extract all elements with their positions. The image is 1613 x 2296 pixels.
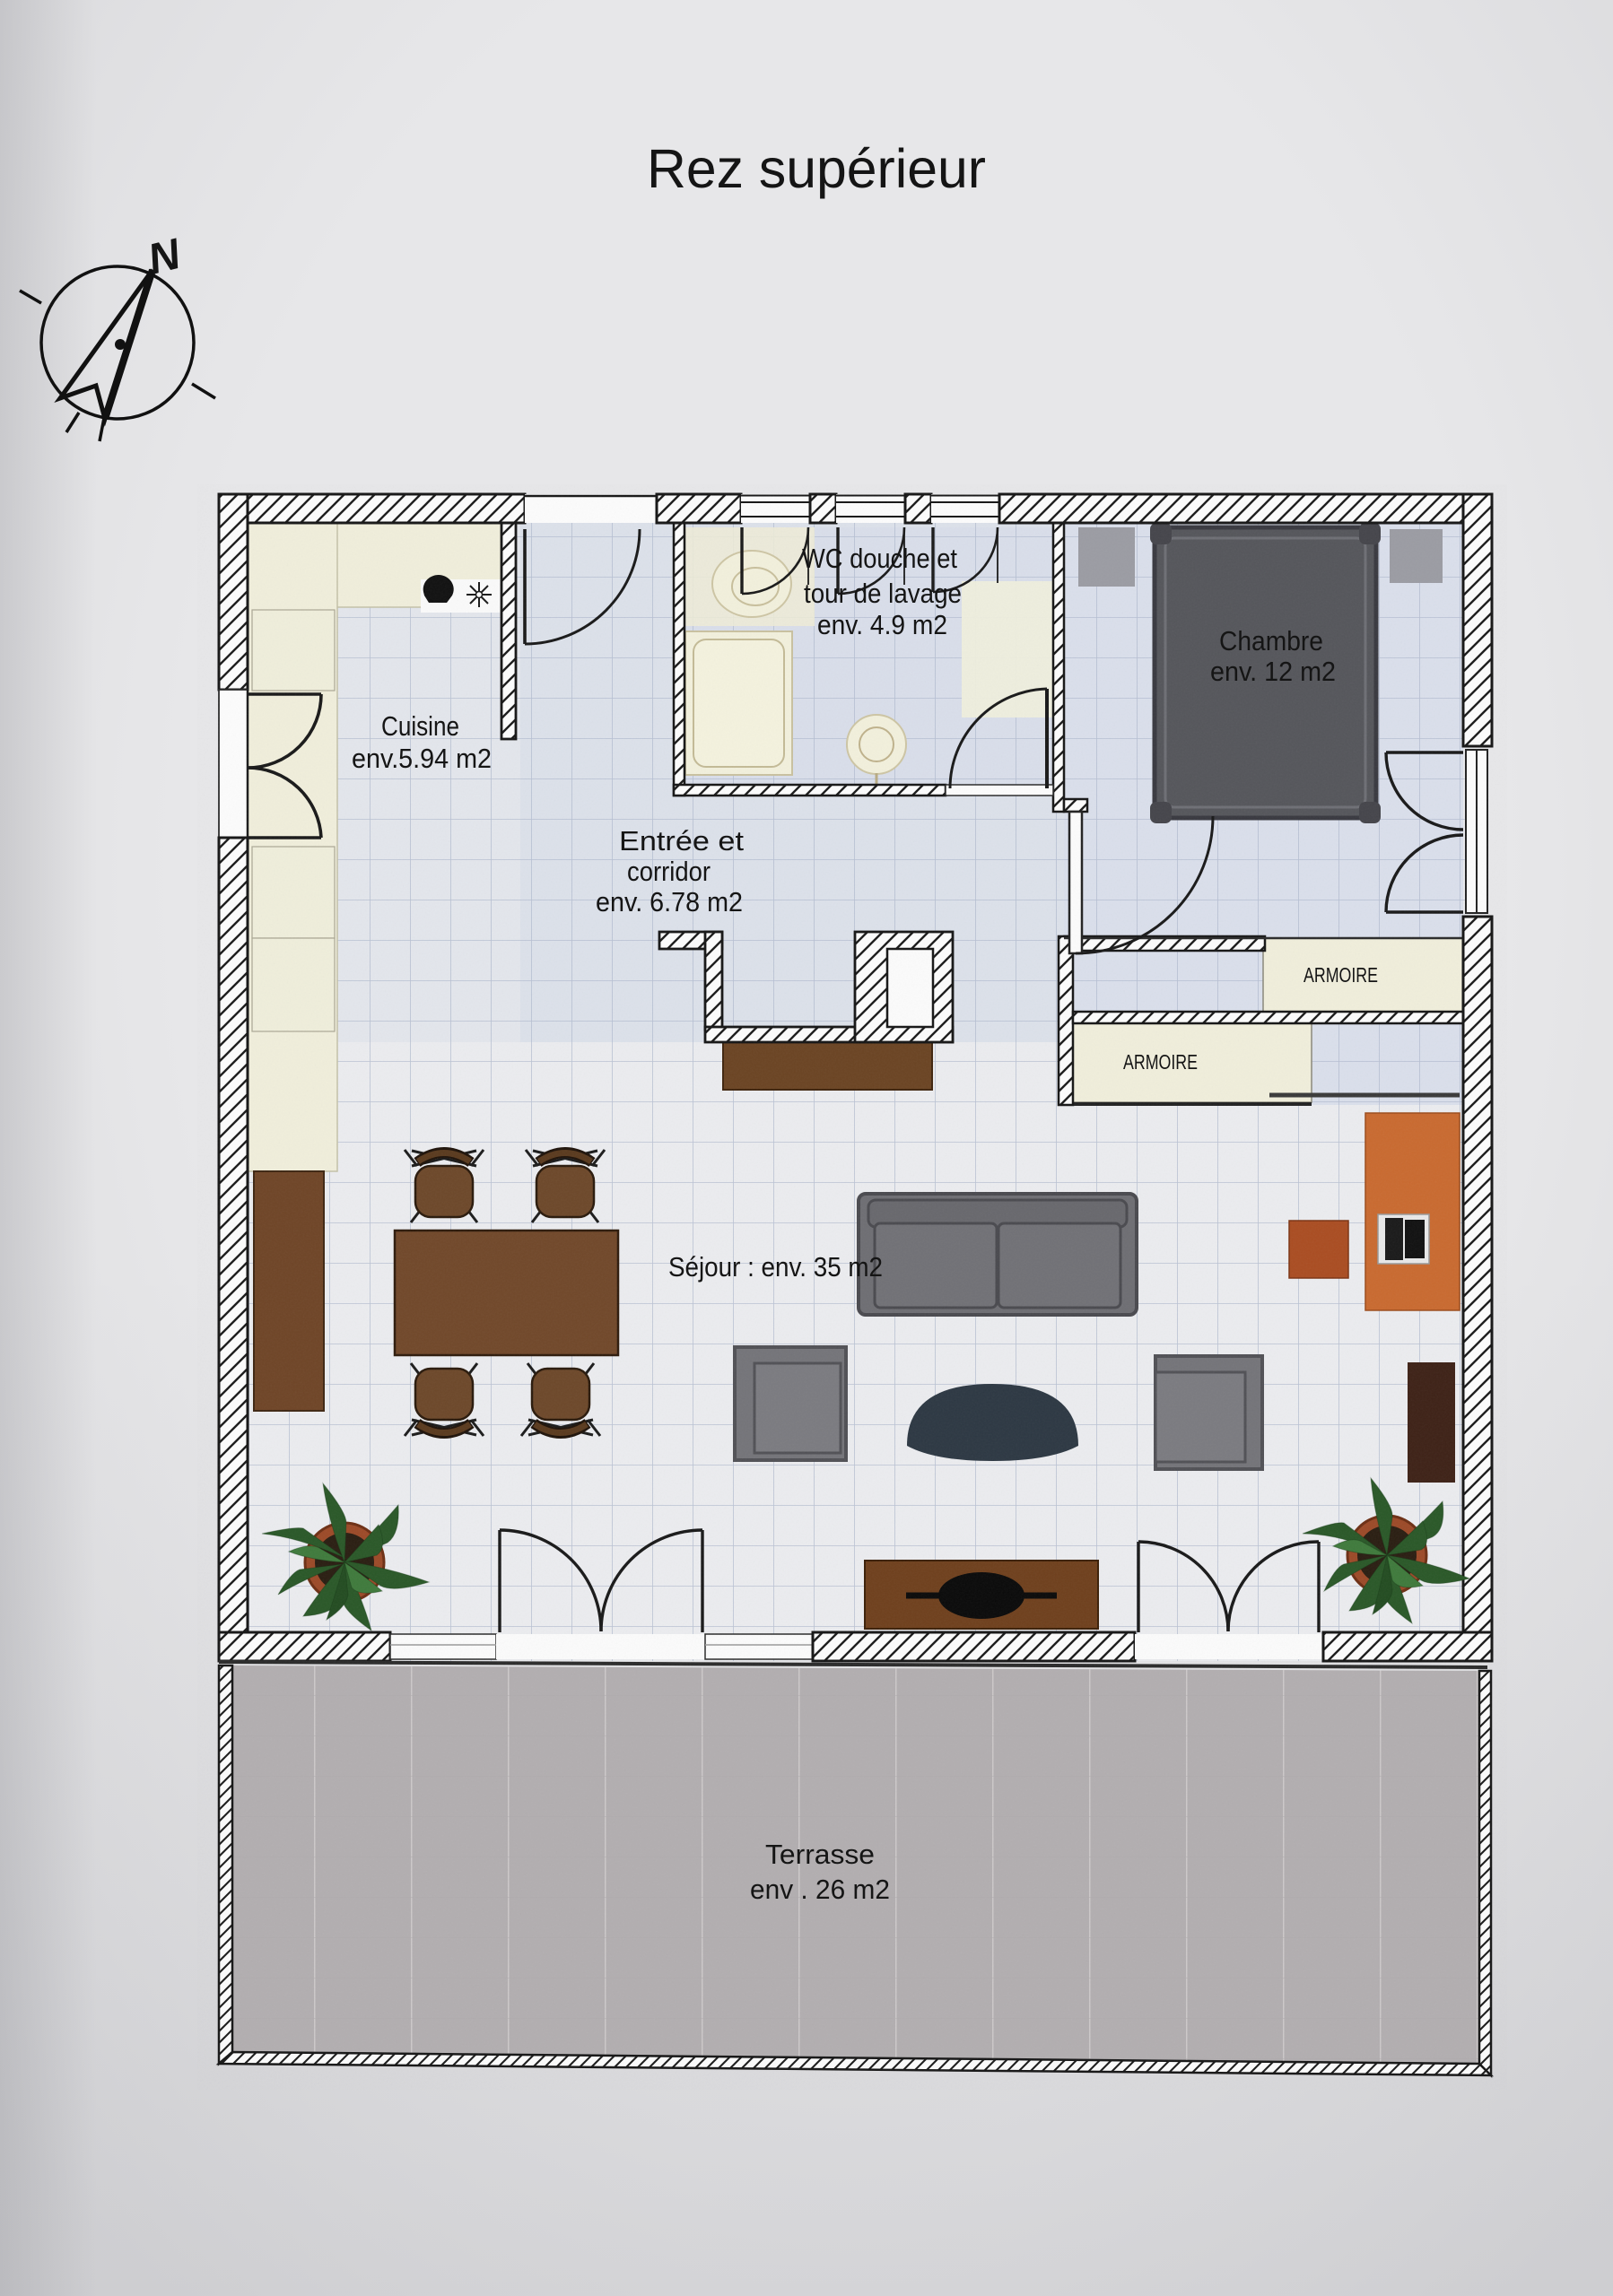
svg-text:tour de lavage: tour de lavage <box>804 578 962 609</box>
svg-text:Terrasse: Terrasse <box>765 1839 875 1870</box>
svg-text:env.5.94 m2: env.5.94 m2 <box>352 743 492 774</box>
svg-text:ARMOIRE: ARMOIRE <box>1303 963 1378 987</box>
svg-text:Cuisine: Cuisine <box>381 710 459 742</box>
svg-text:env . 26 m2: env . 26 m2 <box>750 1874 890 1905</box>
svg-text:Chambre: Chambre <box>1219 625 1323 657</box>
svg-text:Séjour : env. 35 m2: Séjour : env. 35 m2 <box>668 1251 883 1283</box>
svg-text:corridor: corridor <box>627 856 711 887</box>
svg-text:env. 12 m2: env. 12 m2 <box>1210 656 1336 687</box>
svg-text:ARMOIRE: ARMOIRE <box>1123 1050 1198 1074</box>
svg-text:env. 6.78 m2: env. 6.78 m2 <box>596 886 743 918</box>
svg-text:Entrée et: Entrée et <box>619 825 744 857</box>
svg-text:WC douche et: WC douche et <box>802 543 957 574</box>
svg-text:env. 4.9 m2: env. 4.9 m2 <box>817 609 947 640</box>
svg-text:Rez supérieur: Rez supérieur <box>647 138 986 199</box>
